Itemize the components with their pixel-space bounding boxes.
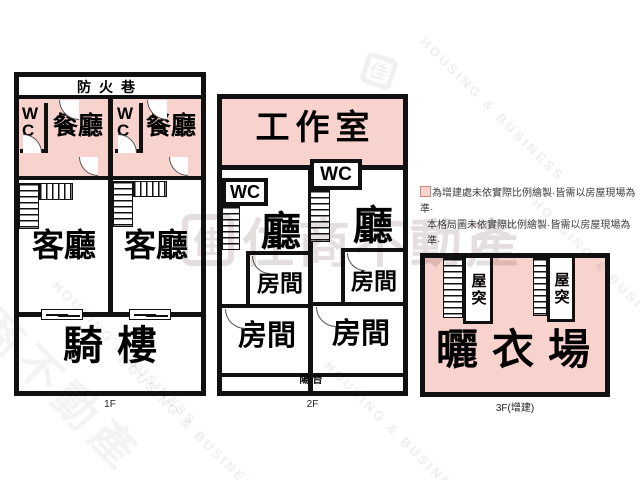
hall-label: 廳 — [254, 211, 308, 253]
fire-lane-label: 防火巷 — [77, 79, 143, 95]
brand-logo-icon: 佳 — [359, 51, 399, 91]
plan-3f: 屋突 屋突 曬衣場 — [420, 253, 610, 397]
studio-label: 工作室 — [222, 111, 403, 147]
brand-watermark-en: HOUSING & BUSINESS — [417, 34, 567, 184]
room-wall — [313, 302, 403, 306]
staircase — [222, 206, 240, 250]
roof-protrusion: 屋突 — [463, 258, 493, 324]
living-room-label: 客廳 — [21, 229, 107, 263]
staircase — [533, 258, 547, 316]
roof-protrusion-label: 屋突 — [468, 273, 489, 307]
drying-area-label: 曬衣場 — [425, 328, 605, 372]
addition-legend-swatch — [420, 186, 431, 197]
door-arc — [316, 307, 336, 327]
room-label: 房間 — [252, 271, 308, 295]
staircase — [113, 181, 133, 227]
living-room-label: 客廳 — [113, 229, 199, 263]
hall-label: 廳 — [346, 205, 400, 247]
window-symbol — [41, 309, 83, 320]
dining-room-label: 餐廳 — [143, 113, 199, 139]
wc-room: WC — [222, 178, 268, 206]
wc-room: WC — [310, 159, 362, 190]
floor-label-3f: 3F(增建) — [420, 399, 610, 414]
staircase — [310, 190, 330, 242]
plan-2f: 工作室 WC WC 廳 廳 房間 房間 房間 房間 — [217, 94, 408, 396]
staircase — [39, 183, 73, 200]
window-symbol — [129, 309, 171, 320]
room-wall — [341, 248, 345, 304]
wc-label: WC — [320, 164, 352, 186]
plan-1f: 防火巷 WC WC 餐廳 餐廳 客廳 客廳 — [14, 72, 206, 396]
room-wall — [246, 251, 250, 304]
disclaimer-line-1: 為增建處未依實際比例繪製·皆需以房屋現場為準· — [420, 186, 636, 218]
door-arc — [225, 309, 245, 329]
balcony-label: 陽台 — [222, 376, 403, 387]
fire-lane: 防火巷 — [19, 77, 201, 99]
room-wall — [222, 304, 308, 308]
room-wall — [246, 251, 308, 255]
room-wall — [341, 248, 403, 252]
floor-label-2f: 2F — [217, 399, 408, 410]
staircase — [133, 181, 167, 197]
disclaimer-note: 為增建處未依實際比例繪製·皆需以房屋現場為準· 本格局圖未依實際比例繪製·皆需以… — [420, 186, 636, 250]
disclaimer-line-2: 本格局圖未依實際比例繪製·皆需以房屋現場為準· — [420, 218, 636, 250]
arcade-label: 騎樓 — [19, 325, 201, 367]
floor-label-1f: 1F — [14, 399, 206, 410]
floorplan-image: 防火巷 WC WC 餐廳 餐廳 客廳 客廳 — [0, 0, 640, 480]
wc-label: WC — [230, 182, 260, 203]
roof-protrusion: 屋突 — [547, 258, 575, 322]
roof-protrusion-label: 屋突 — [551, 272, 572, 306]
room-label: 房間 — [346, 269, 402, 293]
staircase — [443, 258, 463, 318]
staircase — [19, 183, 39, 229]
